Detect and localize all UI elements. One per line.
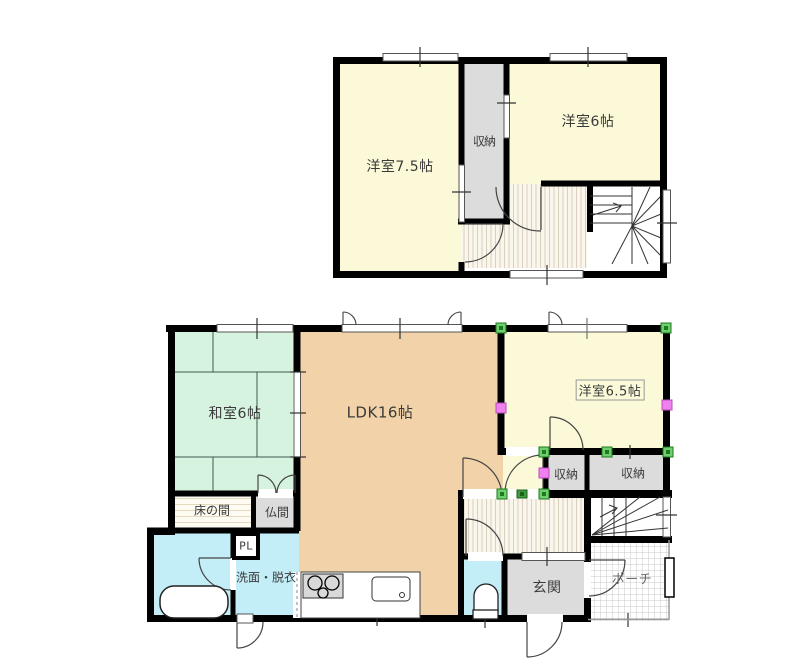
bathtub-icon [160,586,228,618]
kitchen-sink-icon [372,577,410,601]
floor-plan-graphic [0,0,800,665]
window [663,497,671,537]
entrance-step [522,553,585,561]
room-label-1f-porch: ポーチ [612,569,653,588]
room-label-1f-ldk: LDK16帖 [347,402,414,423]
room-label-1f-butsuma: 仏間 [265,504,289,521]
casement-arcs [343,312,562,325]
room-2f-stairs [587,184,664,268]
room-label-1f-western-6-5: 洋室6.5帖 [576,380,645,401]
kitchen-counter [301,572,420,618]
floor-plan: 洋室7.5帖 収納 洋室6帖 和室6帖 LDK16帖 洋室6.5帖 収納 収納 … [0,0,800,665]
room-label-1f-entrance: 玄関 [533,577,562,597]
porch-column [665,558,674,597]
room-1f-hall [461,493,588,556]
room-label-1f-closet-left: 収納 [554,466,578,483]
room-label-1f-washroom: 洗面・脱衣 [236,569,296,586]
room-label-2f-western-6: 洋室6帖 [562,111,615,131]
toilet-icon [473,584,498,619]
room-label-2f-western-7-5: 洋室7.5帖 [366,156,433,176]
washroom-door-opening [237,614,253,623]
room-label-2f-closet: 収納 [473,133,495,150]
sliding-partition [294,372,301,457]
room-label-1f-pl: PL [239,540,253,553]
room-label-1f-tokonoma: 床の間 [194,502,230,519]
closet-opening [504,95,510,138]
room-label-1f-japanese: 和室6帖 [209,403,262,423]
window [342,325,462,333]
window [217,325,293,333]
closet-opening [459,165,465,222]
window [663,190,671,263]
room-label-1f-closet-right: 収納 [621,465,645,482]
